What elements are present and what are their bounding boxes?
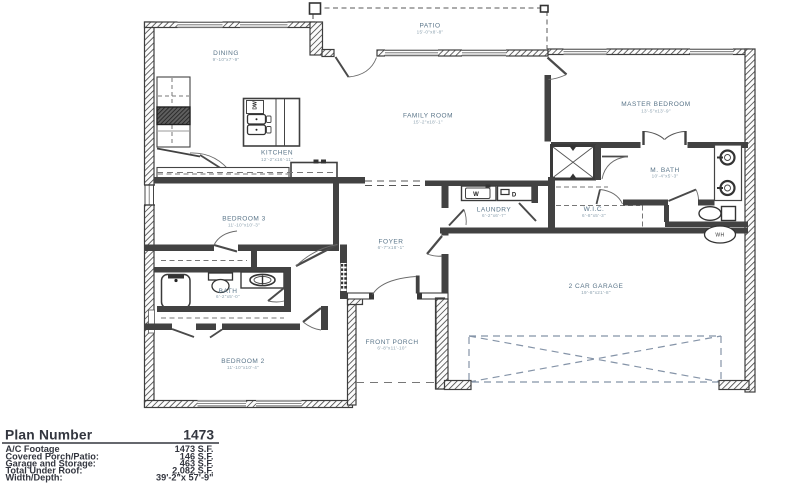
svg-text:6'-2"x6'-7": 6'-2"x6'-7" <box>482 213 506 218</box>
svg-text:6'-7"x18'-1": 6'-7"x18'-1" <box>378 245 405 250</box>
svg-text:BEDROOM 2: BEDROOM 2 <box>221 358 265 365</box>
svg-text:W.I.C.: W.I.C. <box>584 206 605 213</box>
svg-text:Width/Depth:: Width/Depth: <box>6 473 63 483</box>
svg-text:6'-8"x11'-10": 6'-8"x11'-10" <box>377 346 406 351</box>
svg-text:15'-0"x8'-8": 15'-0"x8'-8" <box>417 30 444 35</box>
svg-text:9'-10"x7'-9": 9'-10"x7'-9" <box>213 57 240 62</box>
svg-text:KITCHEN: KITCHEN <box>261 150 293 157</box>
svg-text:DW: DW <box>253 101 259 110</box>
svg-text:WH: WH <box>715 233 724 239</box>
svg-text:FAMILY ROOM: FAMILY ROOM <box>403 113 453 120</box>
svg-text:DINING: DINING <box>213 50 239 57</box>
svg-text:39'-2"x 57'-9": 39'-2"x 57'-9" <box>156 473 214 483</box>
svg-text:Plan Number: Plan Number <box>5 428 93 443</box>
svg-text:6'-8"x5'-3": 6'-8"x5'-3" <box>582 213 606 218</box>
svg-text:12'-2"x16'-11": 12'-2"x16'-11" <box>261 157 293 162</box>
svg-text:19'-8"x21'-8": 19'-8"x21'-8" <box>581 290 611 295</box>
svg-text:1473: 1473 <box>183 428 214 443</box>
svg-text:10'-4"x5'-3": 10'-4"x5'-3" <box>652 174 679 179</box>
svg-text:2 CAR GARAGE: 2 CAR GARAGE <box>569 283 624 290</box>
svg-text:MASTER BEDROOM: MASTER BEDROOM <box>621 101 690 108</box>
svg-text:15'-2"x18'-1": 15'-2"x18'-1" <box>413 120 443 125</box>
svg-text:6'-2"x5'-0": 6'-2"x5'-0" <box>216 294 240 299</box>
svg-text:13'-5"x13'-9": 13'-5"x13'-9" <box>641 109 671 114</box>
svg-text:BEDROOM 3: BEDROOM 3 <box>222 216 266 223</box>
svg-text:11'-10"x10'-3": 11'-10"x10'-3" <box>228 223 260 228</box>
svg-text:D: D <box>512 193 517 199</box>
svg-text:PATIO: PATIO <box>419 23 440 30</box>
svg-text:11'-10"x10'-4": 11'-10"x10'-4" <box>227 365 259 370</box>
svg-text:W: W <box>473 192 479 198</box>
